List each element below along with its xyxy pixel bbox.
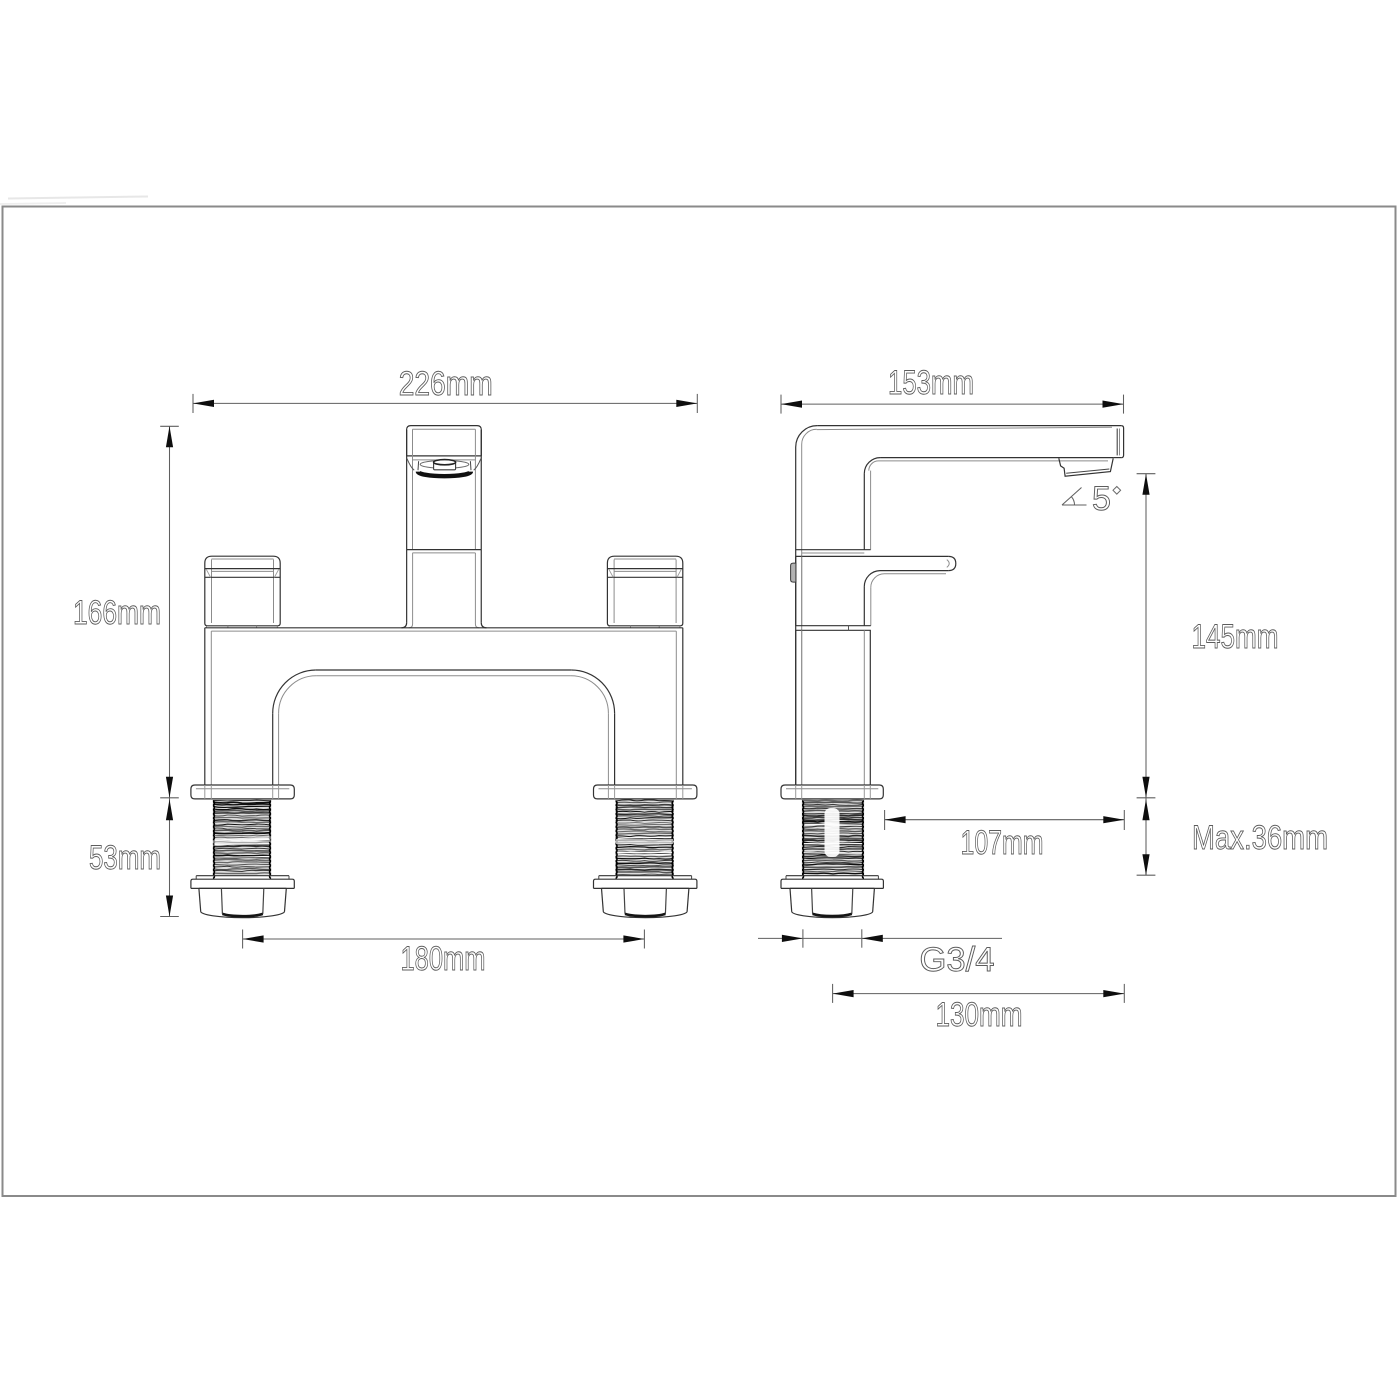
svg-text:53mm: 53mm bbox=[89, 839, 161, 877]
svg-text:107mm: 107mm bbox=[961, 824, 1044, 862]
svg-text:G3/4: G3/4 bbox=[920, 941, 995, 979]
svg-text:5: 5 bbox=[1092, 480, 1111, 518]
svg-text:180mm: 180mm bbox=[401, 940, 486, 978]
svg-text:153mm: 153mm bbox=[888, 364, 974, 402]
svg-text:166mm: 166mm bbox=[73, 594, 161, 632]
svg-text:Max.36mm: Max.36mm bbox=[1192, 819, 1328, 857]
svg-text:130mm: 130mm bbox=[936, 996, 1023, 1034]
svg-text:145mm: 145mm bbox=[1192, 618, 1279, 656]
svg-text:226mm: 226mm bbox=[399, 365, 493, 403]
